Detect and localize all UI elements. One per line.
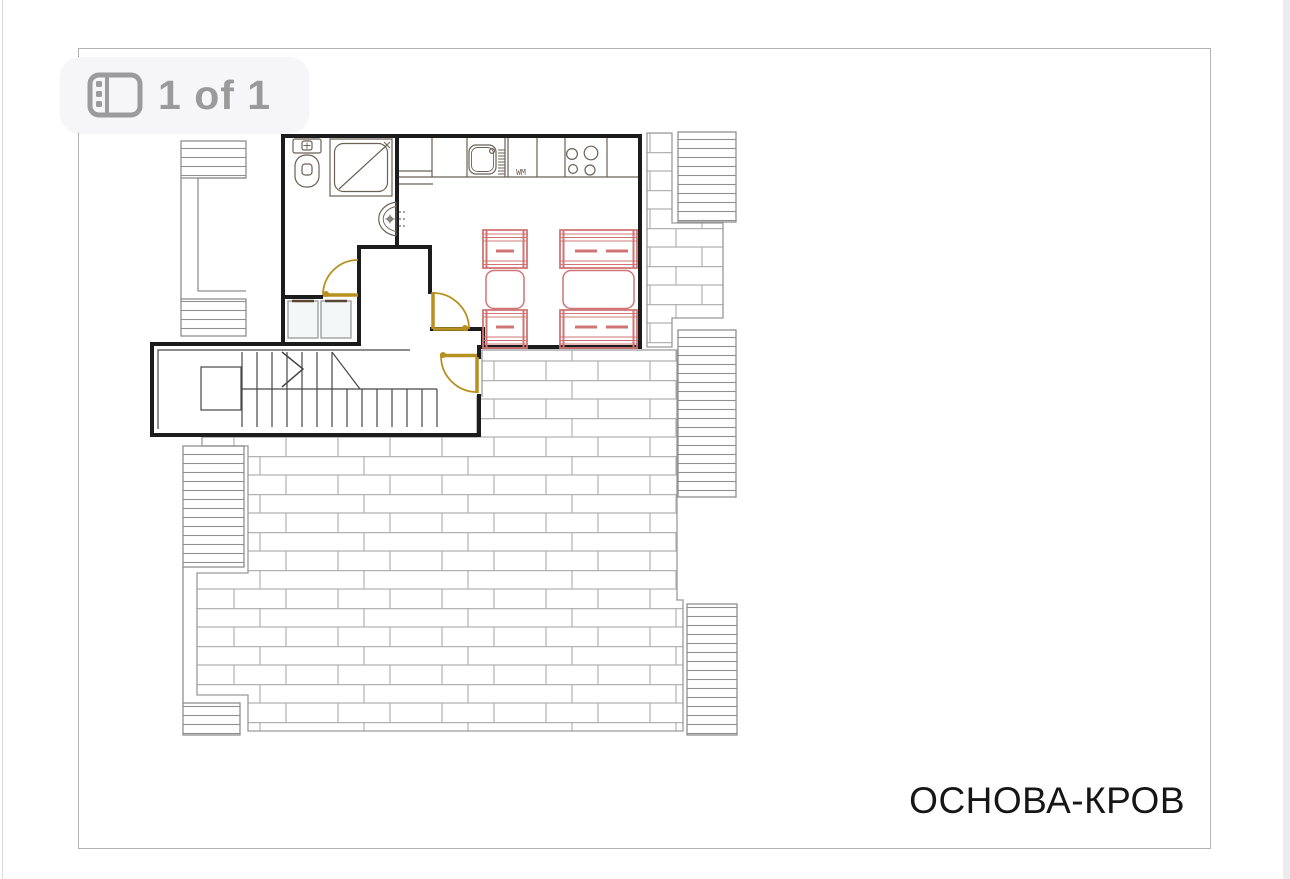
roof-bracket-left bbox=[198, 178, 246, 291]
roof-stripe-top-left bbox=[181, 141, 246, 178]
stove-icon bbox=[567, 146, 598, 175]
drawing-title: ОСНОВА-КРОВ bbox=[890, 780, 1185, 822]
brick-terrace-main bbox=[197, 350, 683, 731]
kitchen-counter: WM bbox=[399, 138, 638, 184]
stairs bbox=[158, 350, 437, 429]
door-livingroom bbox=[433, 292, 469, 331]
page-indicator[interactable]: 1 of 1 bbox=[60, 57, 309, 133]
roof-stripe-lower-left bbox=[183, 446, 244, 567]
page-indicator-label: 1 of 1 bbox=[158, 72, 271, 119]
roof-stripe-bottom-left bbox=[183, 703, 240, 735]
scrollbar[interactable] bbox=[1283, 0, 1290, 879]
roof-stripe-top-right bbox=[678, 132, 736, 222]
roof-stripe-bottom-right bbox=[687, 604, 737, 735]
roof-stripe-mid-left bbox=[181, 299, 246, 336]
kitchen-sink-icon bbox=[469, 145, 496, 174]
booth-group-large bbox=[560, 230, 637, 348]
shower-icon bbox=[330, 139, 392, 196]
red-furniture bbox=[483, 230, 637, 348]
stair-break-line bbox=[332, 352, 360, 389]
terrace-bricks bbox=[197, 133, 723, 731]
dish-drainer-icon bbox=[498, 150, 505, 174]
stair-direction-arrow bbox=[282, 352, 303, 387]
wardrobes bbox=[288, 301, 351, 338]
wardrobe-right bbox=[321, 301, 351, 338]
pages-panel-icon bbox=[86, 71, 144, 119]
bathroom-fixtures bbox=[293, 139, 405, 236]
wardrobe-left bbox=[288, 301, 318, 338]
door-terrace bbox=[440, 352, 477, 393]
viewer-window: WM bbox=[0, 0, 1290, 879]
roof-stripe-mid-right bbox=[678, 330, 736, 497]
washing-machine-label: WM bbox=[516, 168, 526, 177]
booth-group-small bbox=[483, 230, 527, 348]
toilet-icon bbox=[293, 139, 321, 187]
door-closet bbox=[323, 260, 358, 297]
washbasin-icon bbox=[379, 202, 405, 236]
